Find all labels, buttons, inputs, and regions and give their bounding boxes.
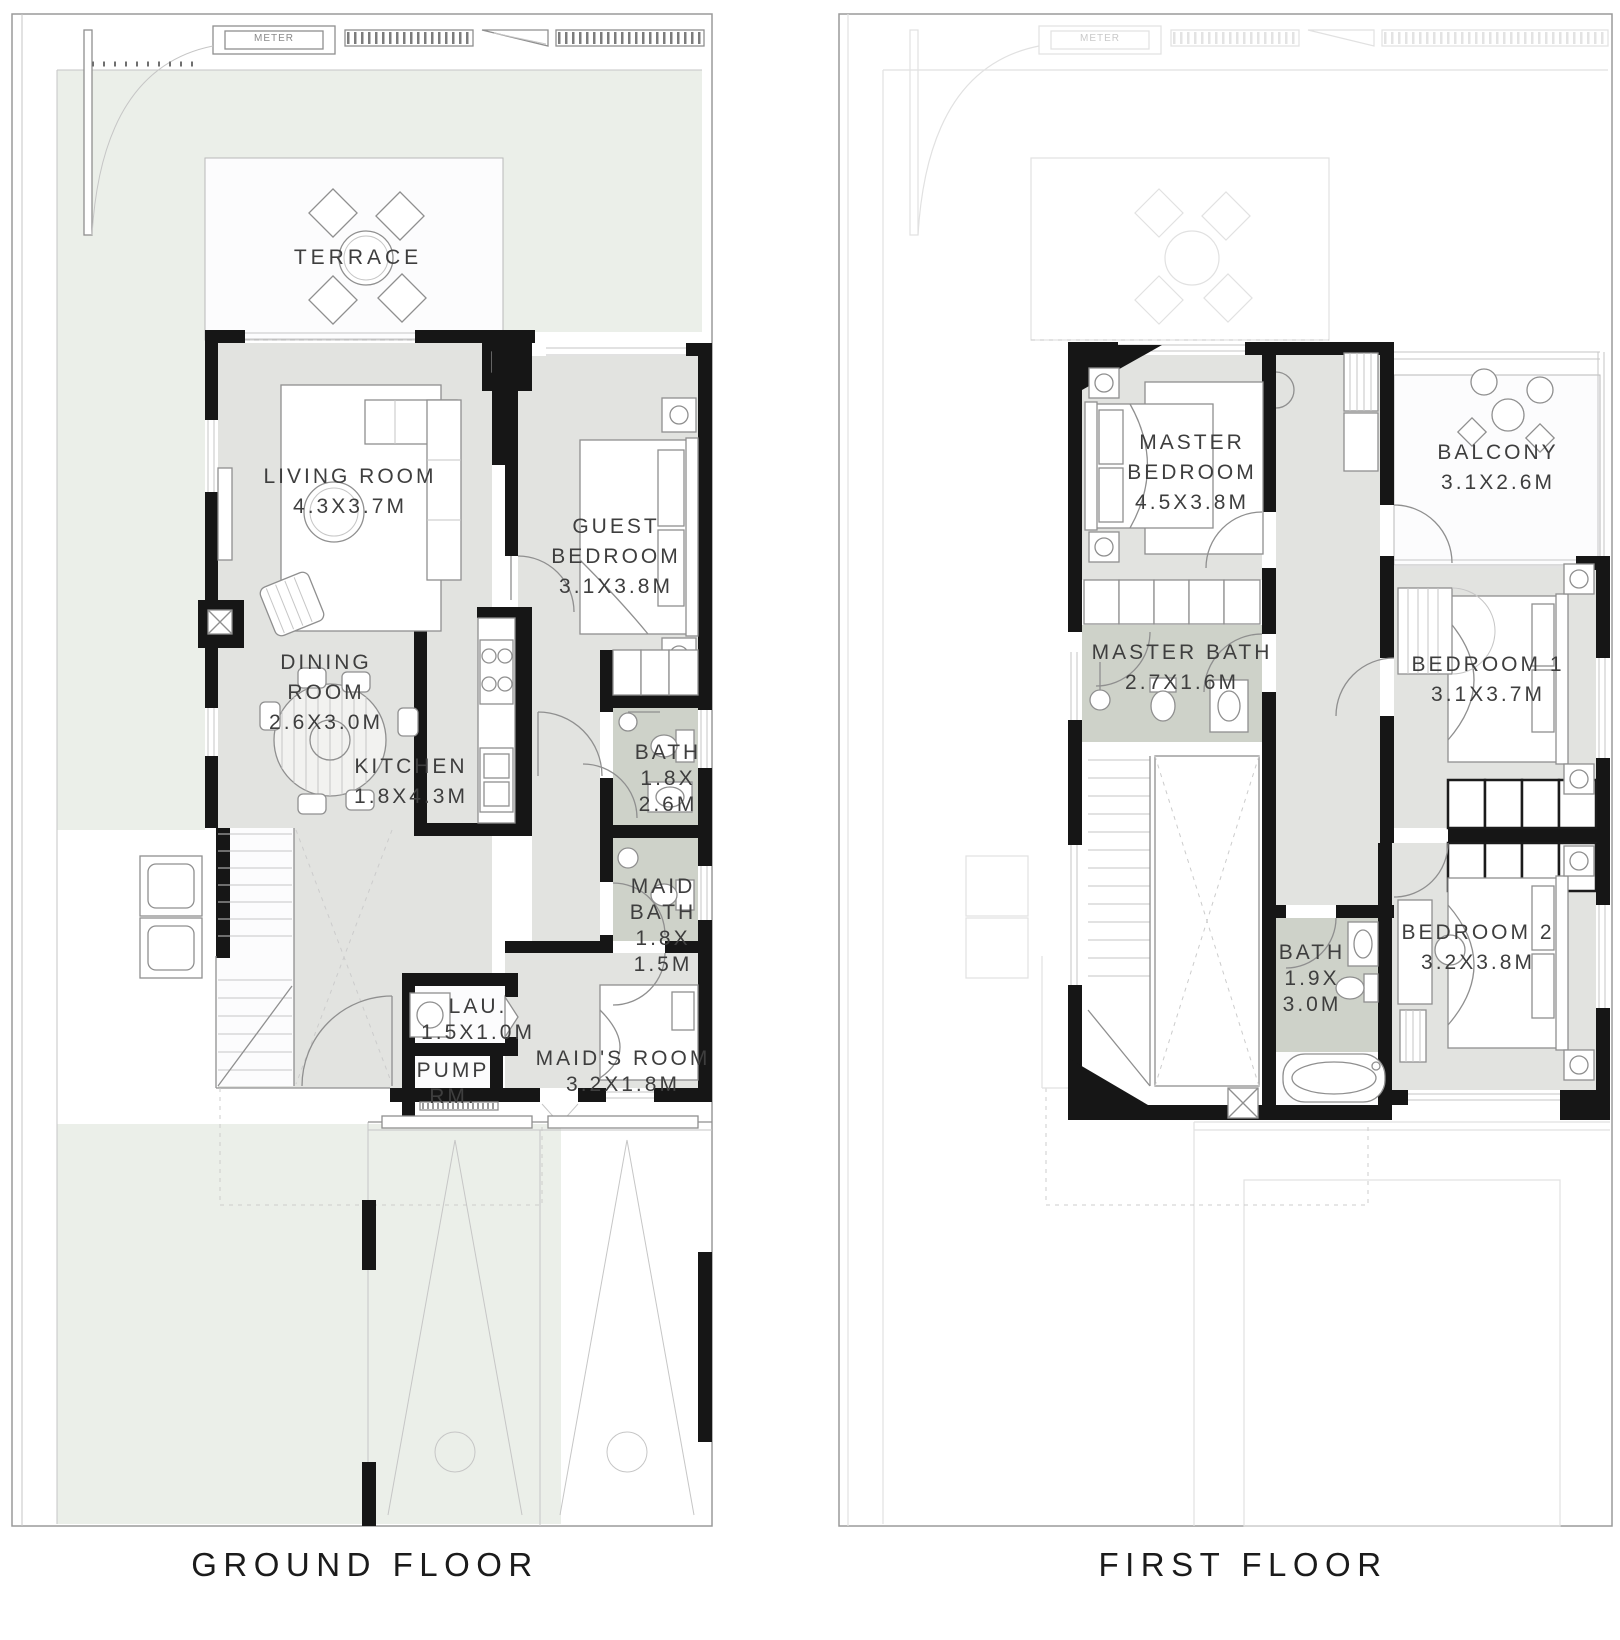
room-label-bedroom-1: BEDROOM 1 3.1X3.7M bbox=[1411, 650, 1564, 710]
room-label-living-room: LIVING ROOM 4.3X3.7M bbox=[263, 462, 436, 522]
first-floor-caption: FIRST FLOOR bbox=[1098, 1546, 1387, 1584]
room-label-guest-bedroom: GUEST BEDROOM 3.1X3.8M bbox=[551, 512, 681, 602]
room-label-maids-room: MAID'S ROOM 3.2X1.8M bbox=[536, 1046, 711, 1098]
first-floor-plan bbox=[839, 14, 1612, 1526]
room-label-laundry: LAU. 1.5X1.0M bbox=[421, 994, 535, 1046]
room-label-bath-ff: BATH 1.9X 3.0M bbox=[1279, 940, 1345, 1018]
room-label-kitchen: KITCHEN 1.8X4.3M bbox=[354, 752, 468, 812]
ff-meter-label: METER bbox=[1080, 33, 1120, 44]
floor-plan-sheet: METER TERRACE LIVING ROOM 4.3X3.7M GUEST… bbox=[0, 0, 1620, 1640]
room-label-master-bedroom: MASTER BEDROOM 4.5X3.8M bbox=[1127, 428, 1257, 518]
room-label-master-bath: MASTER BATH 2.7X1.6M bbox=[1092, 638, 1273, 698]
room-label-dining-room: DINING ROOM 2.6X3.0M bbox=[269, 648, 383, 738]
room-label-bath-gf: BATH 1.8X 2.6M bbox=[635, 740, 701, 818]
room-label-pump-room: PUMP RM. bbox=[417, 1058, 490, 1110]
ground-floor-caption: GROUND FLOOR bbox=[191, 1546, 539, 1584]
room-label-bedroom-2: BEDROOM 2 3.2X3.8M bbox=[1401, 918, 1554, 978]
gf-meter-label: METER bbox=[254, 33, 294, 44]
room-label-maid-bath: MAID BATH 1.8X 1.5M bbox=[630, 874, 696, 978]
room-label-balcony: BALCONY 3.1X2.6M bbox=[1437, 438, 1558, 498]
room-label-terrace: TERRACE bbox=[294, 243, 422, 273]
plan-drawing bbox=[0, 0, 1620, 1640]
